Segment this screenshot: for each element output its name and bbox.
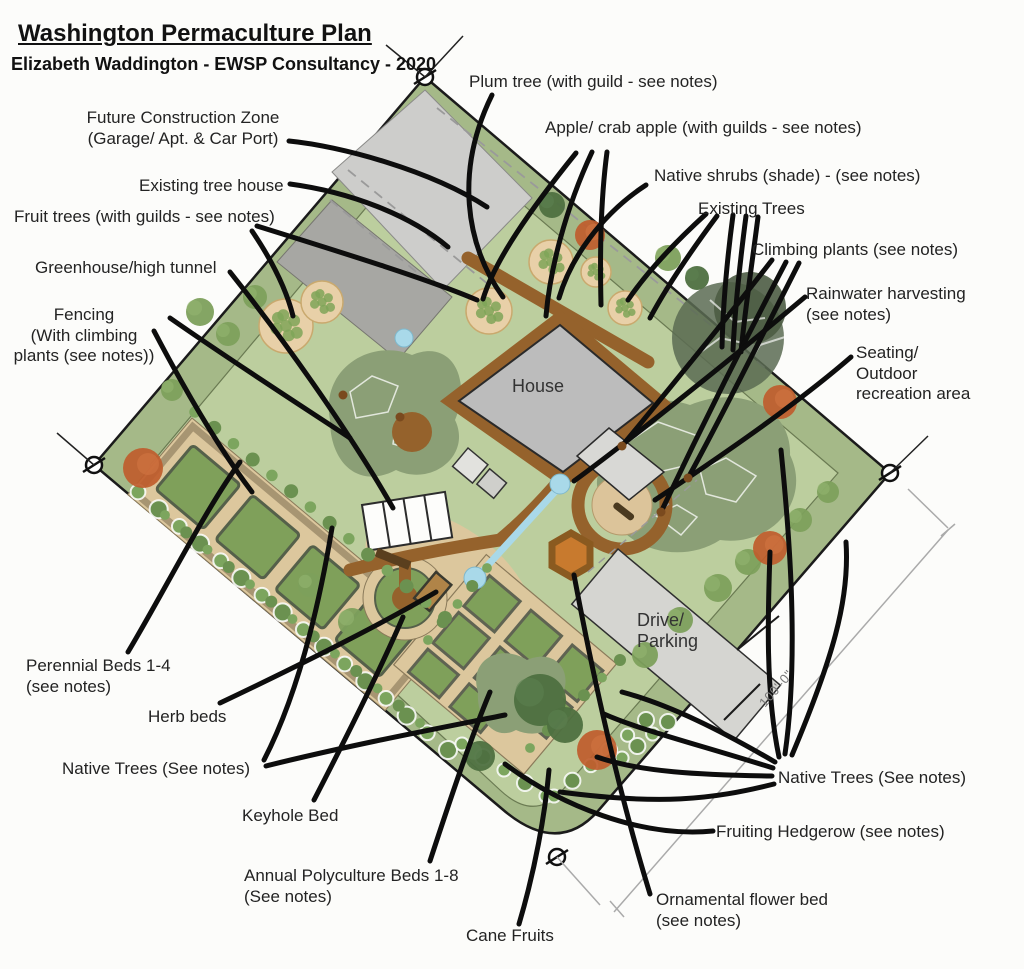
label-native-shrubs: Native shrubs (shade) - (see notes) (654, 166, 920, 187)
label-cane-fruits: Cane Fruits (466, 926, 554, 947)
label-apple: Apple/ crab apple (with guilds - see not… (545, 118, 862, 139)
label-climbing-plants: Climbing plants (see notes) (752, 240, 958, 261)
label-ornamental-bed: Ornamental flower bed (see notes) (656, 890, 828, 931)
permaculture-plan-page: Washington Permaculture Plan Elizabeth W… (0, 0, 1024, 969)
page-subtitle: Elizabeth Waddington - EWSP Consultancy … (11, 54, 436, 75)
ornamental-flower-bed-shape (552, 533, 590, 577)
label-fruit-trees: Fruit trees (with guilds - see notes) (14, 207, 275, 228)
label-existing-trees: Existing Trees (698, 199, 805, 220)
label-native-trees-left: Native Trees (See notes) (62, 759, 250, 780)
label-fruiting-hedgerow: Fruiting Hedgerow (see notes) (716, 822, 945, 843)
drive-parking-label: Drive/ Parking (637, 610, 698, 652)
label-future-construction: Future Construction Zone (Garage/ Apt. &… (83, 108, 283, 149)
label-herb-beds: Herb beds (148, 707, 226, 728)
label-plum-tree: Plum tree (with guild - see notes) (469, 72, 718, 93)
label-greenhouse: Greenhouse/high tunnel (35, 258, 216, 279)
house-label: House (512, 376, 564, 397)
label-perennial-beds: Perennial Beds 1-4 (see notes) (26, 656, 171, 697)
label-keyhole-bed: Keyhole Bed (242, 806, 338, 827)
label-rainwater: Rainwater harvesting (see notes) (806, 284, 966, 325)
page-title: Washington Permaculture Plan (18, 20, 372, 48)
label-fencing: Fencing (With climbing plants (see notes… (8, 305, 160, 367)
label-seating: Seating/ Outdoor recreation area (856, 343, 970, 405)
label-native-trees-right: Native Trees (See notes) (778, 768, 966, 789)
label-existing-tree-house: Existing tree house (139, 176, 284, 197)
label-annual-beds: Annual Polyculture Beds 1-8 (See notes) (244, 866, 459, 907)
